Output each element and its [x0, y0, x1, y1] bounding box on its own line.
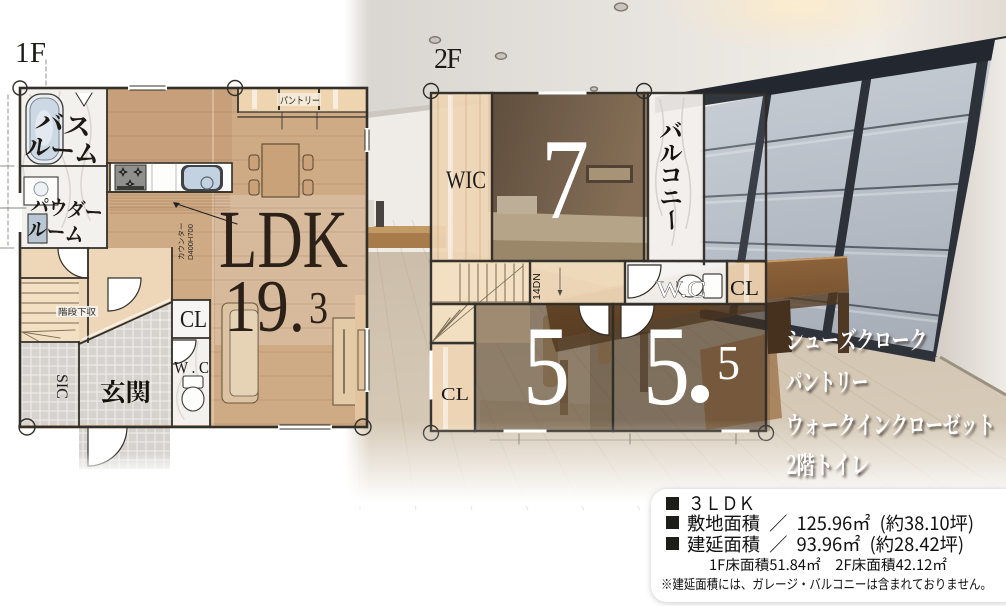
svg-text:CL: CL [180, 307, 207, 333]
svg-text:D400H700: D400H700 [186, 224, 195, 260]
svg-text:CL: CL [441, 384, 469, 404]
svg-text:5: 5 [717, 335, 740, 390]
svg-text:3: 3 [309, 283, 328, 333]
svg-text:W . C: W . C [174, 358, 209, 377]
svg-text:CL: CL [730, 276, 759, 300]
svg-text:2F: 2F [434, 44, 462, 75]
svg-text:7: 7 [541, 116, 589, 244]
svg-text:WIC: WIC [446, 167, 486, 194]
svg-text:19.: 19. [224, 266, 305, 348]
svg-text:5: 5 [643, 304, 690, 429]
svg-text:14DN: 14DN [531, 273, 543, 300]
svg-text:W.C: W.C [656, 277, 706, 302]
svg-text:5: 5 [523, 304, 570, 429]
svg-text:1F: 1F [15, 37, 46, 69]
svg-text:SIC: SIC [53, 374, 70, 399]
